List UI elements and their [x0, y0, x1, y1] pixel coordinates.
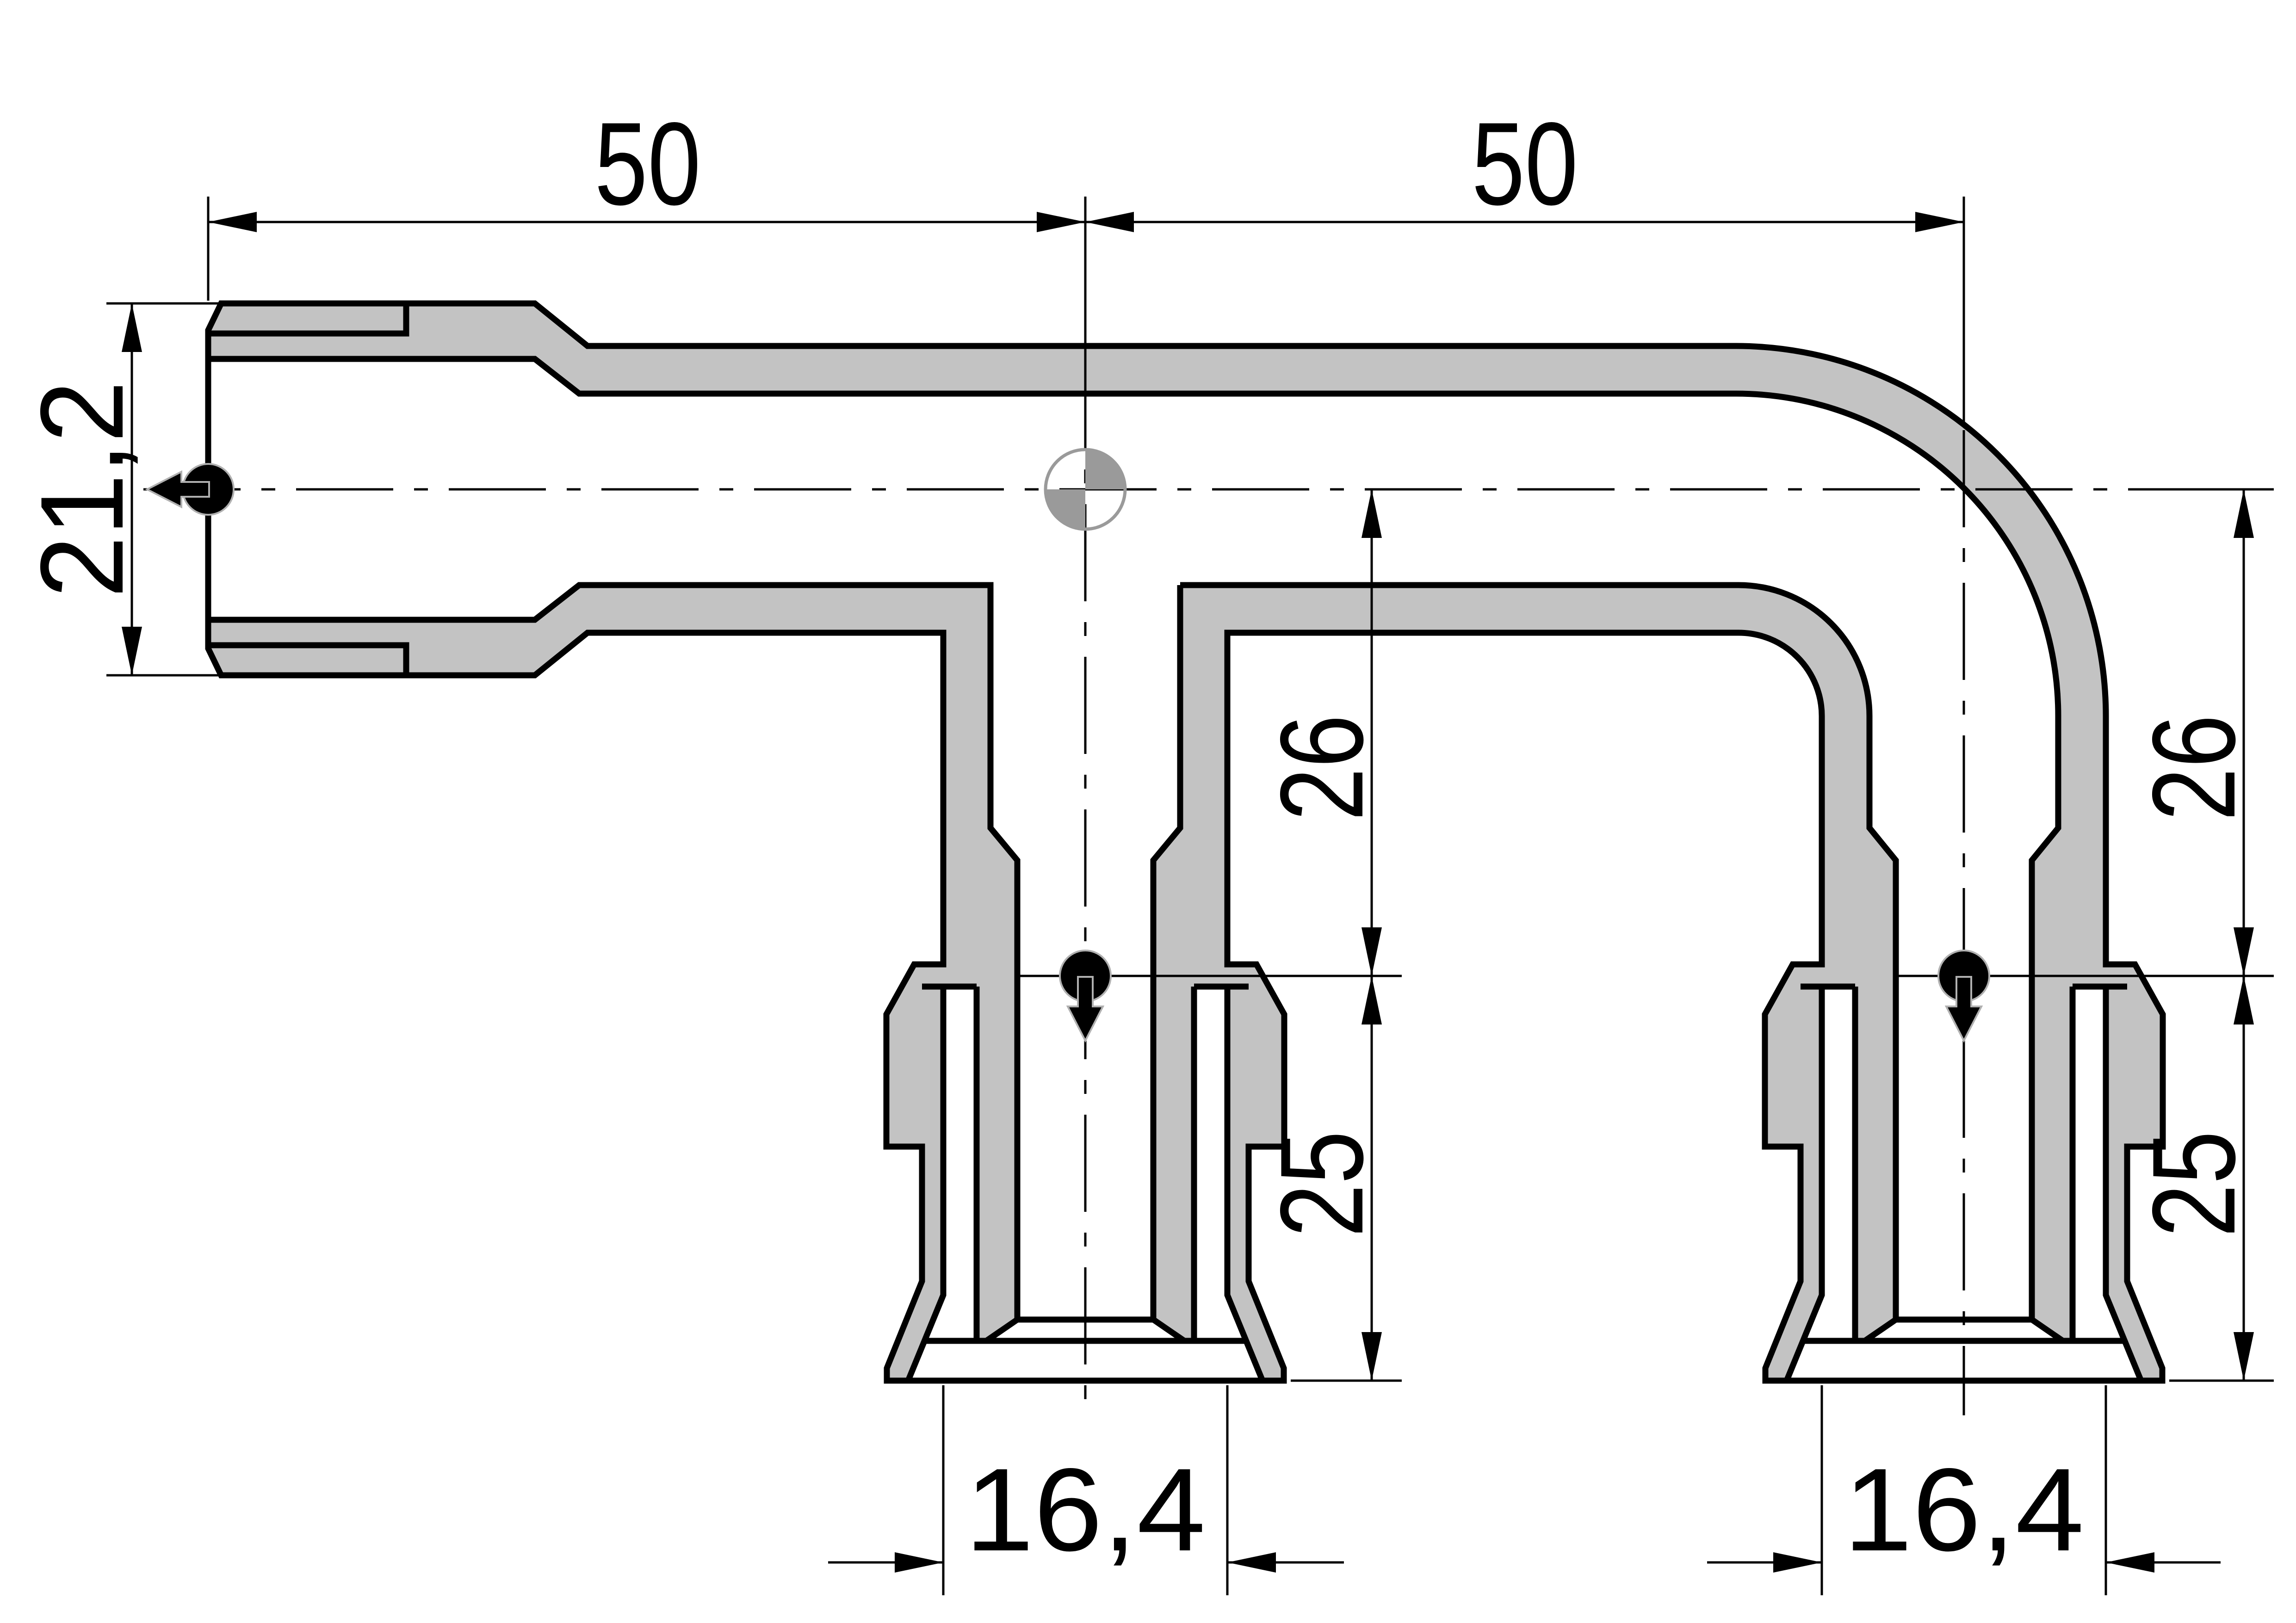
arrowhead [2106, 1552, 2154, 1573]
section-fill-layer [208, 303, 2163, 1381]
right-branch-right-wall-fill [2032, 716, 2106, 999]
right-body-strip-left-fill [1855, 987, 1896, 1341]
arrowhead [2234, 927, 2254, 976]
dim-21-2-label: 21,2 [16, 381, 148, 598]
technical-drawing: 50 50 21,2 26 25 26 [0, 0, 2296, 1623]
dimension-16-4-mid: 16,4 [828, 1385, 1344, 1595]
dim-26-mid-label: 26 [1256, 715, 1388, 821]
arrowhead [1915, 212, 1964, 232]
arrowhead [208, 212, 257, 232]
arrowhead [1227, 1552, 1276, 1573]
arrowhead [1362, 1332, 1382, 1381]
mid-branch-left-wall-fill [943, 585, 1017, 999]
arrowhead [1362, 489, 1382, 538]
elbow-outer-ring-fill [1736, 346, 2106, 716]
mid-branch-right-wall-fill [1153, 585, 1227, 999]
dim-16-4-right-label: 16,4 [1844, 1444, 2084, 1576]
arrowhead [2234, 489, 2254, 538]
dim-50-left-label: 50 [594, 98, 701, 230]
arrowhead [1085, 212, 1134, 232]
dim-25-mid-label: 25 [1256, 1131, 1388, 1237]
tube-bottom-wall-left-fill [585, 585, 943, 633]
centroid-symbol [1046, 450, 1125, 529]
bore-contour-top [208, 359, 2063, 1341]
bore-contour-bottom-left [208, 585, 1017, 1341]
socket-bottom-wall-fill [208, 585, 592, 675]
dim-16-4-mid-label: 16,4 [965, 1444, 1206, 1576]
arrowhead [2234, 1332, 2254, 1381]
dim-26-right-label: 26 [2128, 715, 2260, 821]
right-body-strip-right-fill [2032, 987, 2073, 1341]
arrowhead [122, 627, 142, 675]
right-branch-left-wall-fill [1822, 716, 1896, 999]
arrowhead [2234, 976, 2254, 1024]
arrowhead [895, 1552, 943, 1573]
dim-50-right-label: 50 [1472, 98, 1578, 230]
arrowhead [1773, 1552, 1822, 1573]
arrowhead [1362, 927, 1382, 976]
connection-point-right [1938, 950, 1989, 1041]
connection-point-left [147, 464, 234, 515]
socket-top-wall-fill [208, 303, 592, 394]
dim-25-right-label: 25 [2128, 1131, 2260, 1237]
mid-body-strip-right-fill [1153, 987, 1194, 1341]
arrowhead [1362, 976, 1382, 1024]
tube-bottom-wall-right-fill [1227, 585, 1739, 633]
drawing-sheet: 50 50 21,2 26 25 26 [0, 0, 2296, 1623]
connection-point-mid [1060, 950, 1111, 1041]
dimension-16-4-right: 16,4 [1707, 1385, 2221, 1595]
arrowhead [122, 303, 142, 352]
arrowhead [1037, 212, 1085, 232]
tube-top-wall-fill [585, 346, 1737, 394]
mid-body-strip-left-fill [977, 987, 1017, 1341]
